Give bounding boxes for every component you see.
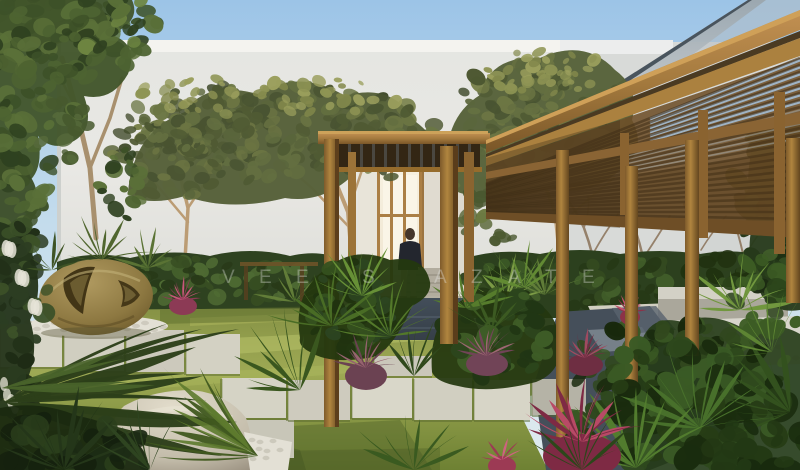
- svg-text:E: E: [296, 267, 309, 288]
- svg-text:A: A: [434, 267, 447, 288]
- svg-text:A: A: [508, 267, 521, 288]
- svg-text:V: V: [222, 267, 235, 288]
- svg-text:T: T: [545, 267, 557, 288]
- svg-text:E: E: [582, 267, 595, 288]
- svg-text:E: E: [259, 267, 272, 288]
- svg-text:S: S: [362, 267, 375, 288]
- svg-text:Z: Z: [471, 267, 483, 288]
